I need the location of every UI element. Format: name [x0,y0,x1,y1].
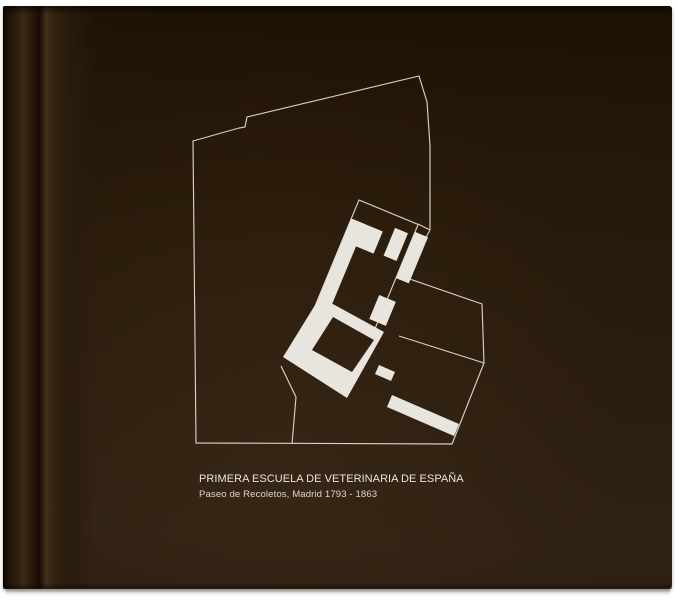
courtyard-building [283,297,384,398]
caption-subtitle: Paseo de Recoletos, Madrid 1793 - 1863 [199,489,464,501]
site-plan [0,0,678,600]
photo-stage: PRIMERA ESCUELA DE VETERINARIA DE ESPAÑA… [0,0,678,600]
building-annex-2 [387,395,459,436]
building-annex-1 [375,365,395,381]
caption-title: PRIMERA ESCUELA DE VETERINARIA DE ESPAÑA [199,473,464,486]
parcel-line-1 [399,336,484,363]
parcel-line-3 [418,224,430,230]
parcel-line-2 [281,366,296,444]
building-block-5 [369,295,396,326]
caption: PRIMERA ESCUELA DE VETERINARIA DE ESPAÑA… [199,473,464,501]
building-block-2 [384,228,408,261]
